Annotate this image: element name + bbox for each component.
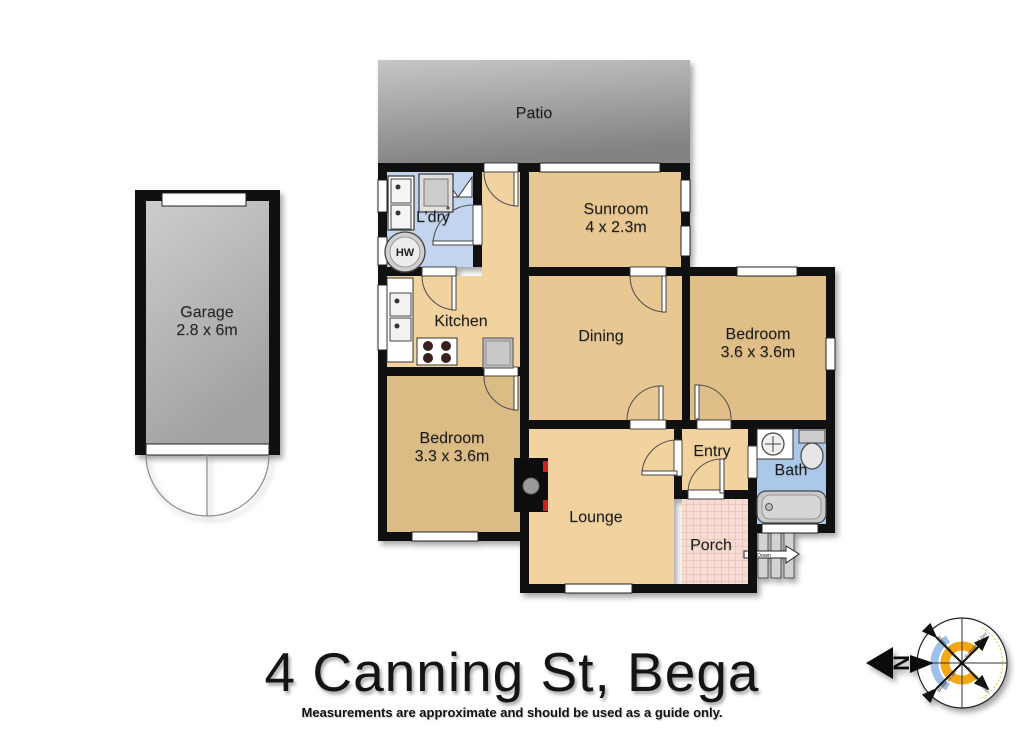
lounge-floor (529, 428, 674, 584)
toilet (799, 430, 825, 469)
lounge-window (565, 584, 632, 593)
stove (417, 338, 457, 365)
garage-structure (135, 190, 280, 516)
hw-label: HW (396, 247, 415, 259)
kitchen-window (378, 285, 387, 350)
bathtub (757, 491, 826, 523)
sunroom-right-window2 (681, 226, 690, 256)
entry-floor (682, 428, 748, 490)
floor-plan-svg: Down (0, 0, 1024, 741)
sunroom-top-window (540, 163, 660, 172)
porch-floor (682, 499, 748, 584)
bath-window (762, 524, 818, 533)
bedroom-left-floor (387, 376, 520, 532)
bedroom-right-top-window (737, 267, 797, 276)
sunroom-floor (529, 172, 681, 267)
hot-water-unit: HW (385, 232, 425, 272)
bedroom-right-floor (690, 276, 826, 420)
garage-window (162, 193, 246, 206)
plan-title: 4 Canning St, Bega (0, 640, 1024, 704)
fireplace (514, 458, 548, 512)
patio-area (378, 60, 690, 163)
house-floors (387, 172, 826, 584)
sunroom-right-window (681, 180, 690, 212)
garage-double-door (146, 455, 269, 516)
bedroom-left-window (412, 532, 478, 541)
plan-disclaimer: Measurements are approximate and should … (0, 705, 1024, 720)
kitchen-sink (390, 293, 411, 316)
laundry-window (378, 180, 387, 212)
floorplan-canvas: Down (0, 0, 1024, 741)
stairs-down-label: Down (757, 553, 771, 559)
bedroom-right-side-window (826, 338, 835, 370)
